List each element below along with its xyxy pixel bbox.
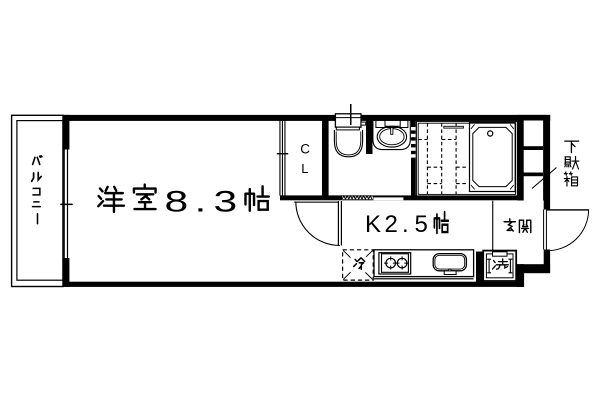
svg-text:L: L — [301, 161, 308, 176]
svg-text:C: C — [300, 141, 310, 156]
svg-text:.: . — [402, 211, 409, 238]
svg-text:3: 3 — [214, 185, 238, 218]
svg-text:.: . — [195, 185, 207, 218]
svg-text:5: 5 — [415, 211, 428, 238]
svg-text:2: 2 — [385, 211, 398, 238]
svg-text:K: K — [365, 211, 381, 238]
svg-text:8: 8 — [165, 185, 189, 218]
